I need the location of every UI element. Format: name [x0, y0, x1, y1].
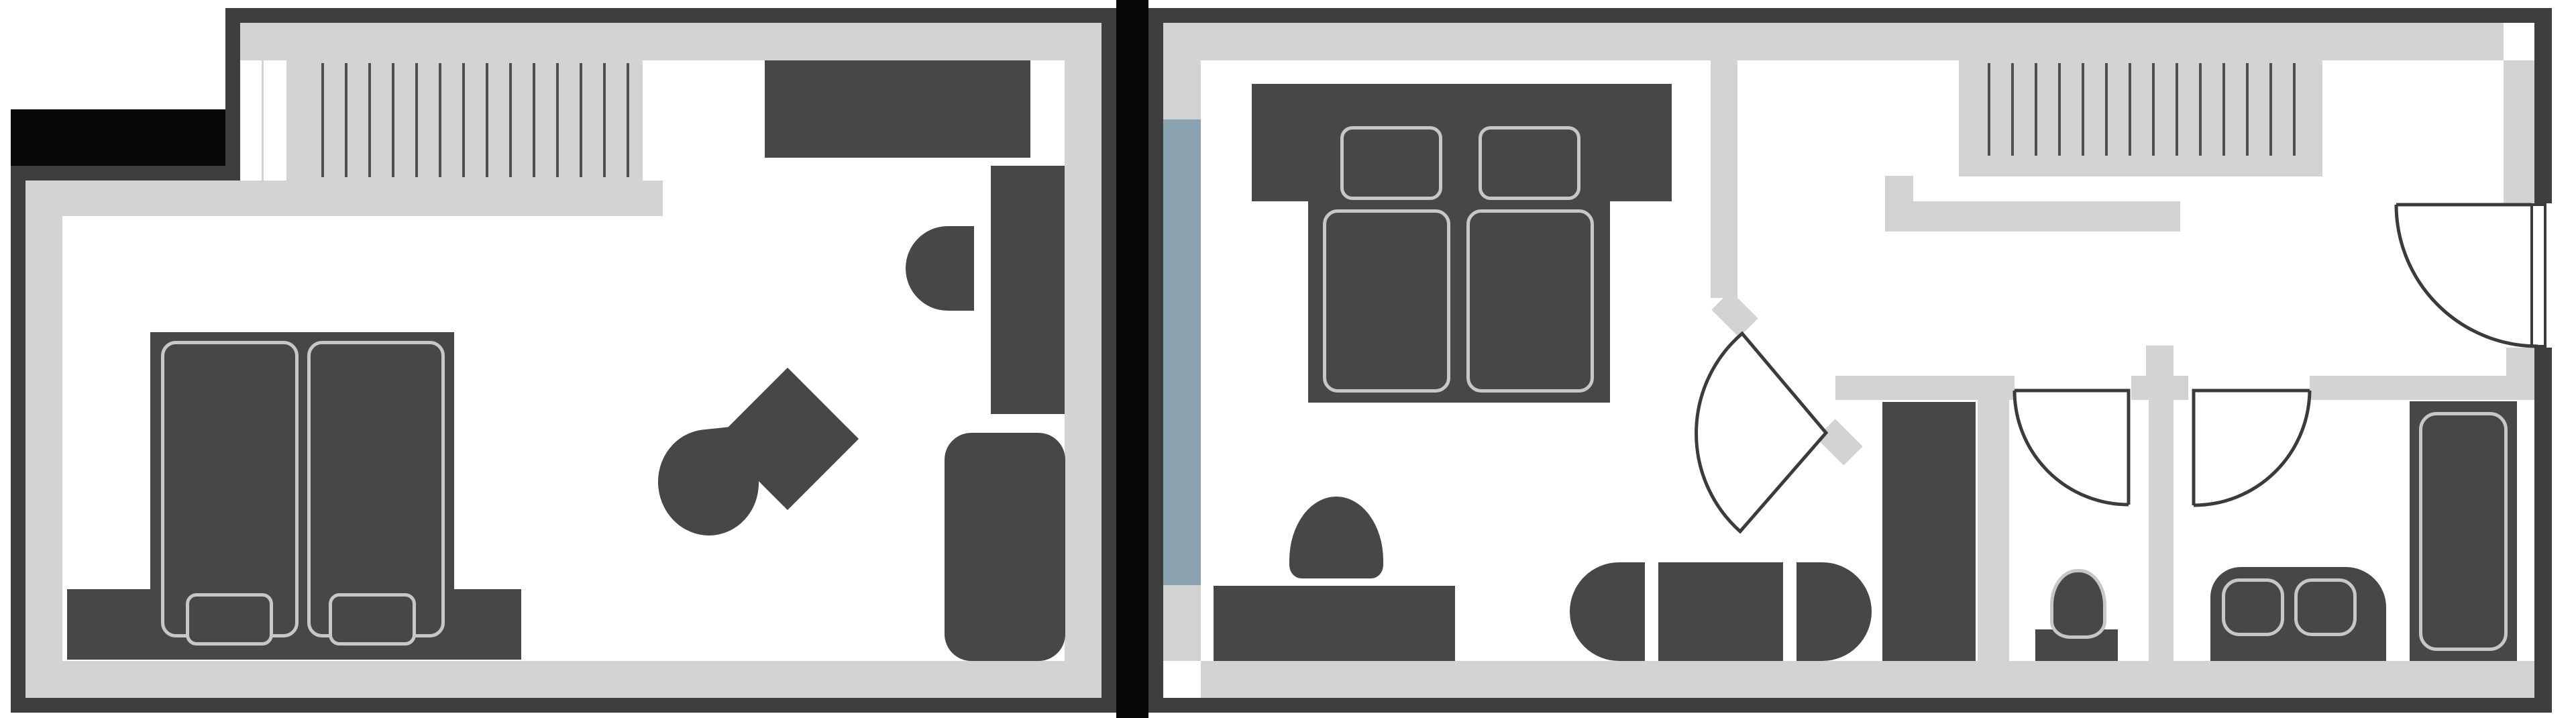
- left-unit-wall-right: [1102, 8, 1116, 713]
- pill-sofa-right-cap: [1796, 562, 1872, 661]
- entrance-door-opening: [2504, 203, 2553, 348]
- partition-stub-up: [2146, 346, 2173, 376]
- pillow-left-right-unit: [1340, 126, 1442, 200]
- closet-hatch-lines-right: [1967, 63, 2309, 156]
- armchair-arch: [1289, 497, 1383, 578]
- half-round-chair: [906, 226, 974, 311]
- right-unit-wall-left: [1148, 8, 1163, 713]
- closet-hatch-lines: [301, 63, 636, 177]
- party-wall-divider: [1116, 0, 1148, 718]
- right-unit-wall-bottom: [1148, 698, 2552, 713]
- headboard: [1252, 84, 1672, 201]
- right-unit-wall-right: [2534, 8, 2552, 713]
- left-unit-wall-bottom: [11, 698, 1116, 713]
- black-shaft-block: [11, 109, 225, 166]
- shower-duct-block: [1882, 402, 1976, 661]
- toilet-bowl: [2050, 569, 2106, 639]
- pillow-right-right-unit: [1479, 126, 1580, 200]
- teardrop-lounge-chair: [653, 425, 764, 541]
- left-unit-wall-left: [11, 166, 25, 713]
- pill-sofa-left-cap: [1570, 562, 1645, 661]
- wc-door-swing: [2015, 391, 2129, 505]
- sink-basin-right: [2294, 578, 2357, 636]
- floor-plan: [0, 0, 2576, 718]
- tv-board: [991, 166, 1065, 414]
- left-unit-band-bottom: [25, 661, 1102, 698]
- left-unit-band-right: [1065, 60, 1102, 661]
- hall-bath-partition-segment-2: [2131, 376, 2188, 400]
- entry-low-wall-horizontal: [1885, 201, 2180, 232]
- hall-bath-partition-segment-1: [1835, 376, 2015, 400]
- bed-pillow-right: [329, 593, 416, 646]
- bathtub-inner-outline: [2419, 412, 2508, 651]
- chaise-sofa: [945, 433, 1065, 661]
- mattress-right-right-unit: [1466, 209, 1594, 393]
- shower-block-side-band: [1978, 400, 2009, 661]
- entrance-corner-band: [2506, 348, 2534, 378]
- sink-basin-left: [2222, 578, 2284, 636]
- wc-bath-dividing-wall: [2149, 400, 2173, 661]
- hall-door-hinge-stub: [1816, 419, 1862, 465]
- right-unit-band-right-upper: [2504, 60, 2534, 203]
- right-unit-band-left-lower: [1163, 585, 1201, 661]
- hall-bath-partition-segment-3: [2310, 376, 2534, 400]
- left-unit-wall-top: [225, 8, 1116, 23]
- closet-gap-column: [264, 60, 286, 181]
- left-unit-notch-wall-vertical: [225, 8, 240, 181]
- window-glazing-strip: [1163, 119, 1201, 585]
- sideboard-desk: [765, 60, 1030, 158]
- pill-sofa-middle: [1658, 562, 1783, 661]
- left-unit-band-top: [240, 23, 1102, 60]
- right-unit-band-top: [1163, 23, 2504, 60]
- right-unit-wall-top: [1148, 8, 2552, 23]
- left-unit-band-left: [25, 181, 62, 661]
- right-unit-band-bottom: [1201, 661, 2534, 698]
- right-unit-band-left-upper: [1163, 60, 1201, 119]
- hall-door-swing: [1697, 334, 1826, 531]
- bathroom-door-swing: [2194, 391, 2310, 505]
- bedroom-partition-wall: [1711, 60, 1737, 298]
- left-unit-notch-wall-horizontal: [11, 166, 240, 181]
- desk-bench: [1214, 586, 1455, 661]
- left-unit-band-under-notch: [25, 181, 663, 216]
- bed-pillow-left: [186, 593, 273, 646]
- mattress-left-right-unit: [1323, 209, 1450, 393]
